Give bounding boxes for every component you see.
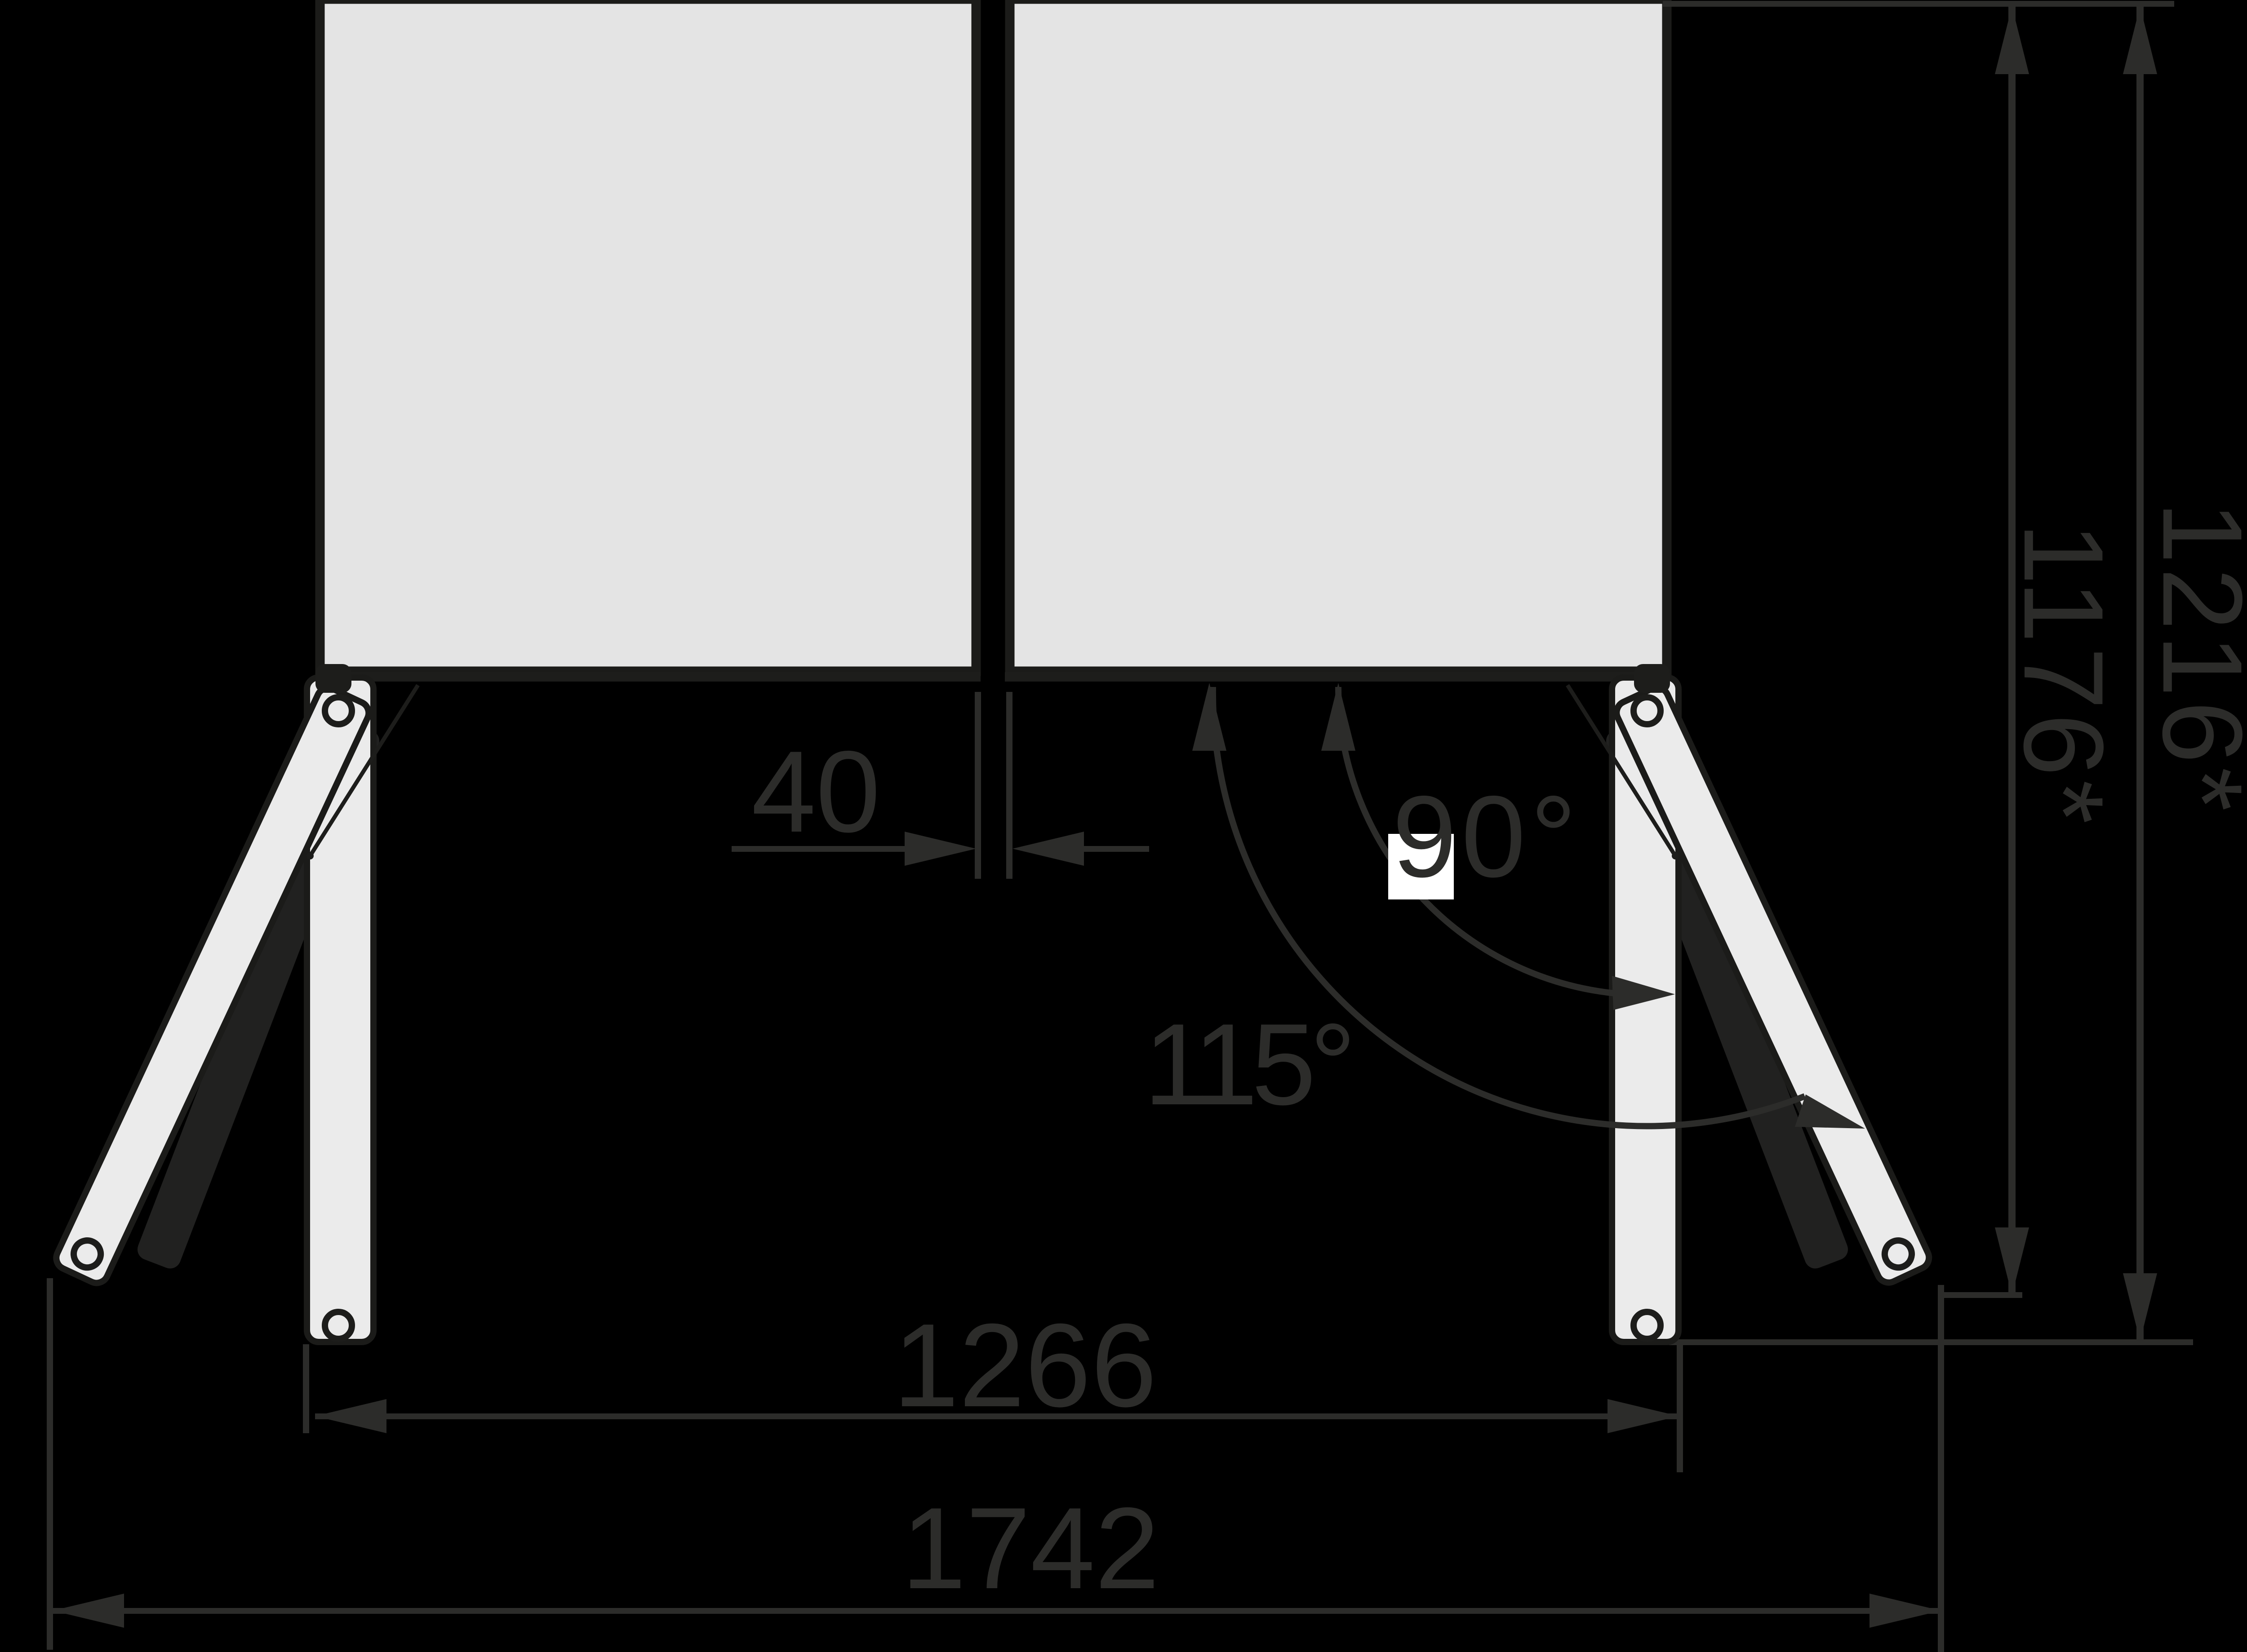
svg-text:40: 40 <box>751 726 880 856</box>
svg-text:115°: 115° <box>1144 999 1350 1129</box>
svg-text:1216*: 1216* <box>2139 501 2247 815</box>
svg-text:1742: 1742 <box>901 1483 1159 1613</box>
svg-text:90°: 90° <box>1392 771 1581 901</box>
svg-text:1266: 1266 <box>893 1299 1157 1431</box>
svg-text:1176*: 1176* <box>2000 522 2127 828</box>
